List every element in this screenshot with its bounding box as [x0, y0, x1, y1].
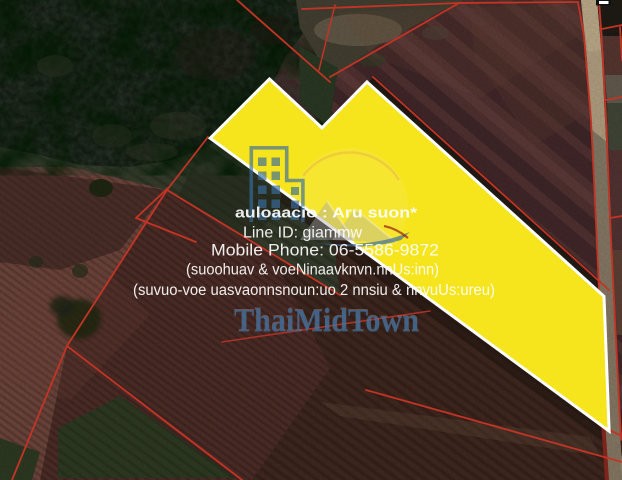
svg-text:(suoohuav & voeNinaavknvn.nnUs: (suoohuav & voeNinaavknvn.nnUs:inn): [186, 262, 439, 279]
svg-text:auloaacio : Aru suon*: auloaacio : Aru suon*: [235, 206, 417, 222]
svg-text:(suvuo-voe uasvaonnsnoun:uo 2: (suvuo-voe uasvaonnsnoun:uo 2 nnsiu & nn…: [133, 282, 495, 299]
svg-text:ThaiMidTown: ThaiMidTown: [234, 304, 419, 340]
svg-text:Mobile Phone: 06-5586-9872: Mobile Phone: 06-5586-9872: [211, 241, 439, 260]
svg-text:Line ID: giammw: Line ID: giammw: [243, 225, 362, 242]
